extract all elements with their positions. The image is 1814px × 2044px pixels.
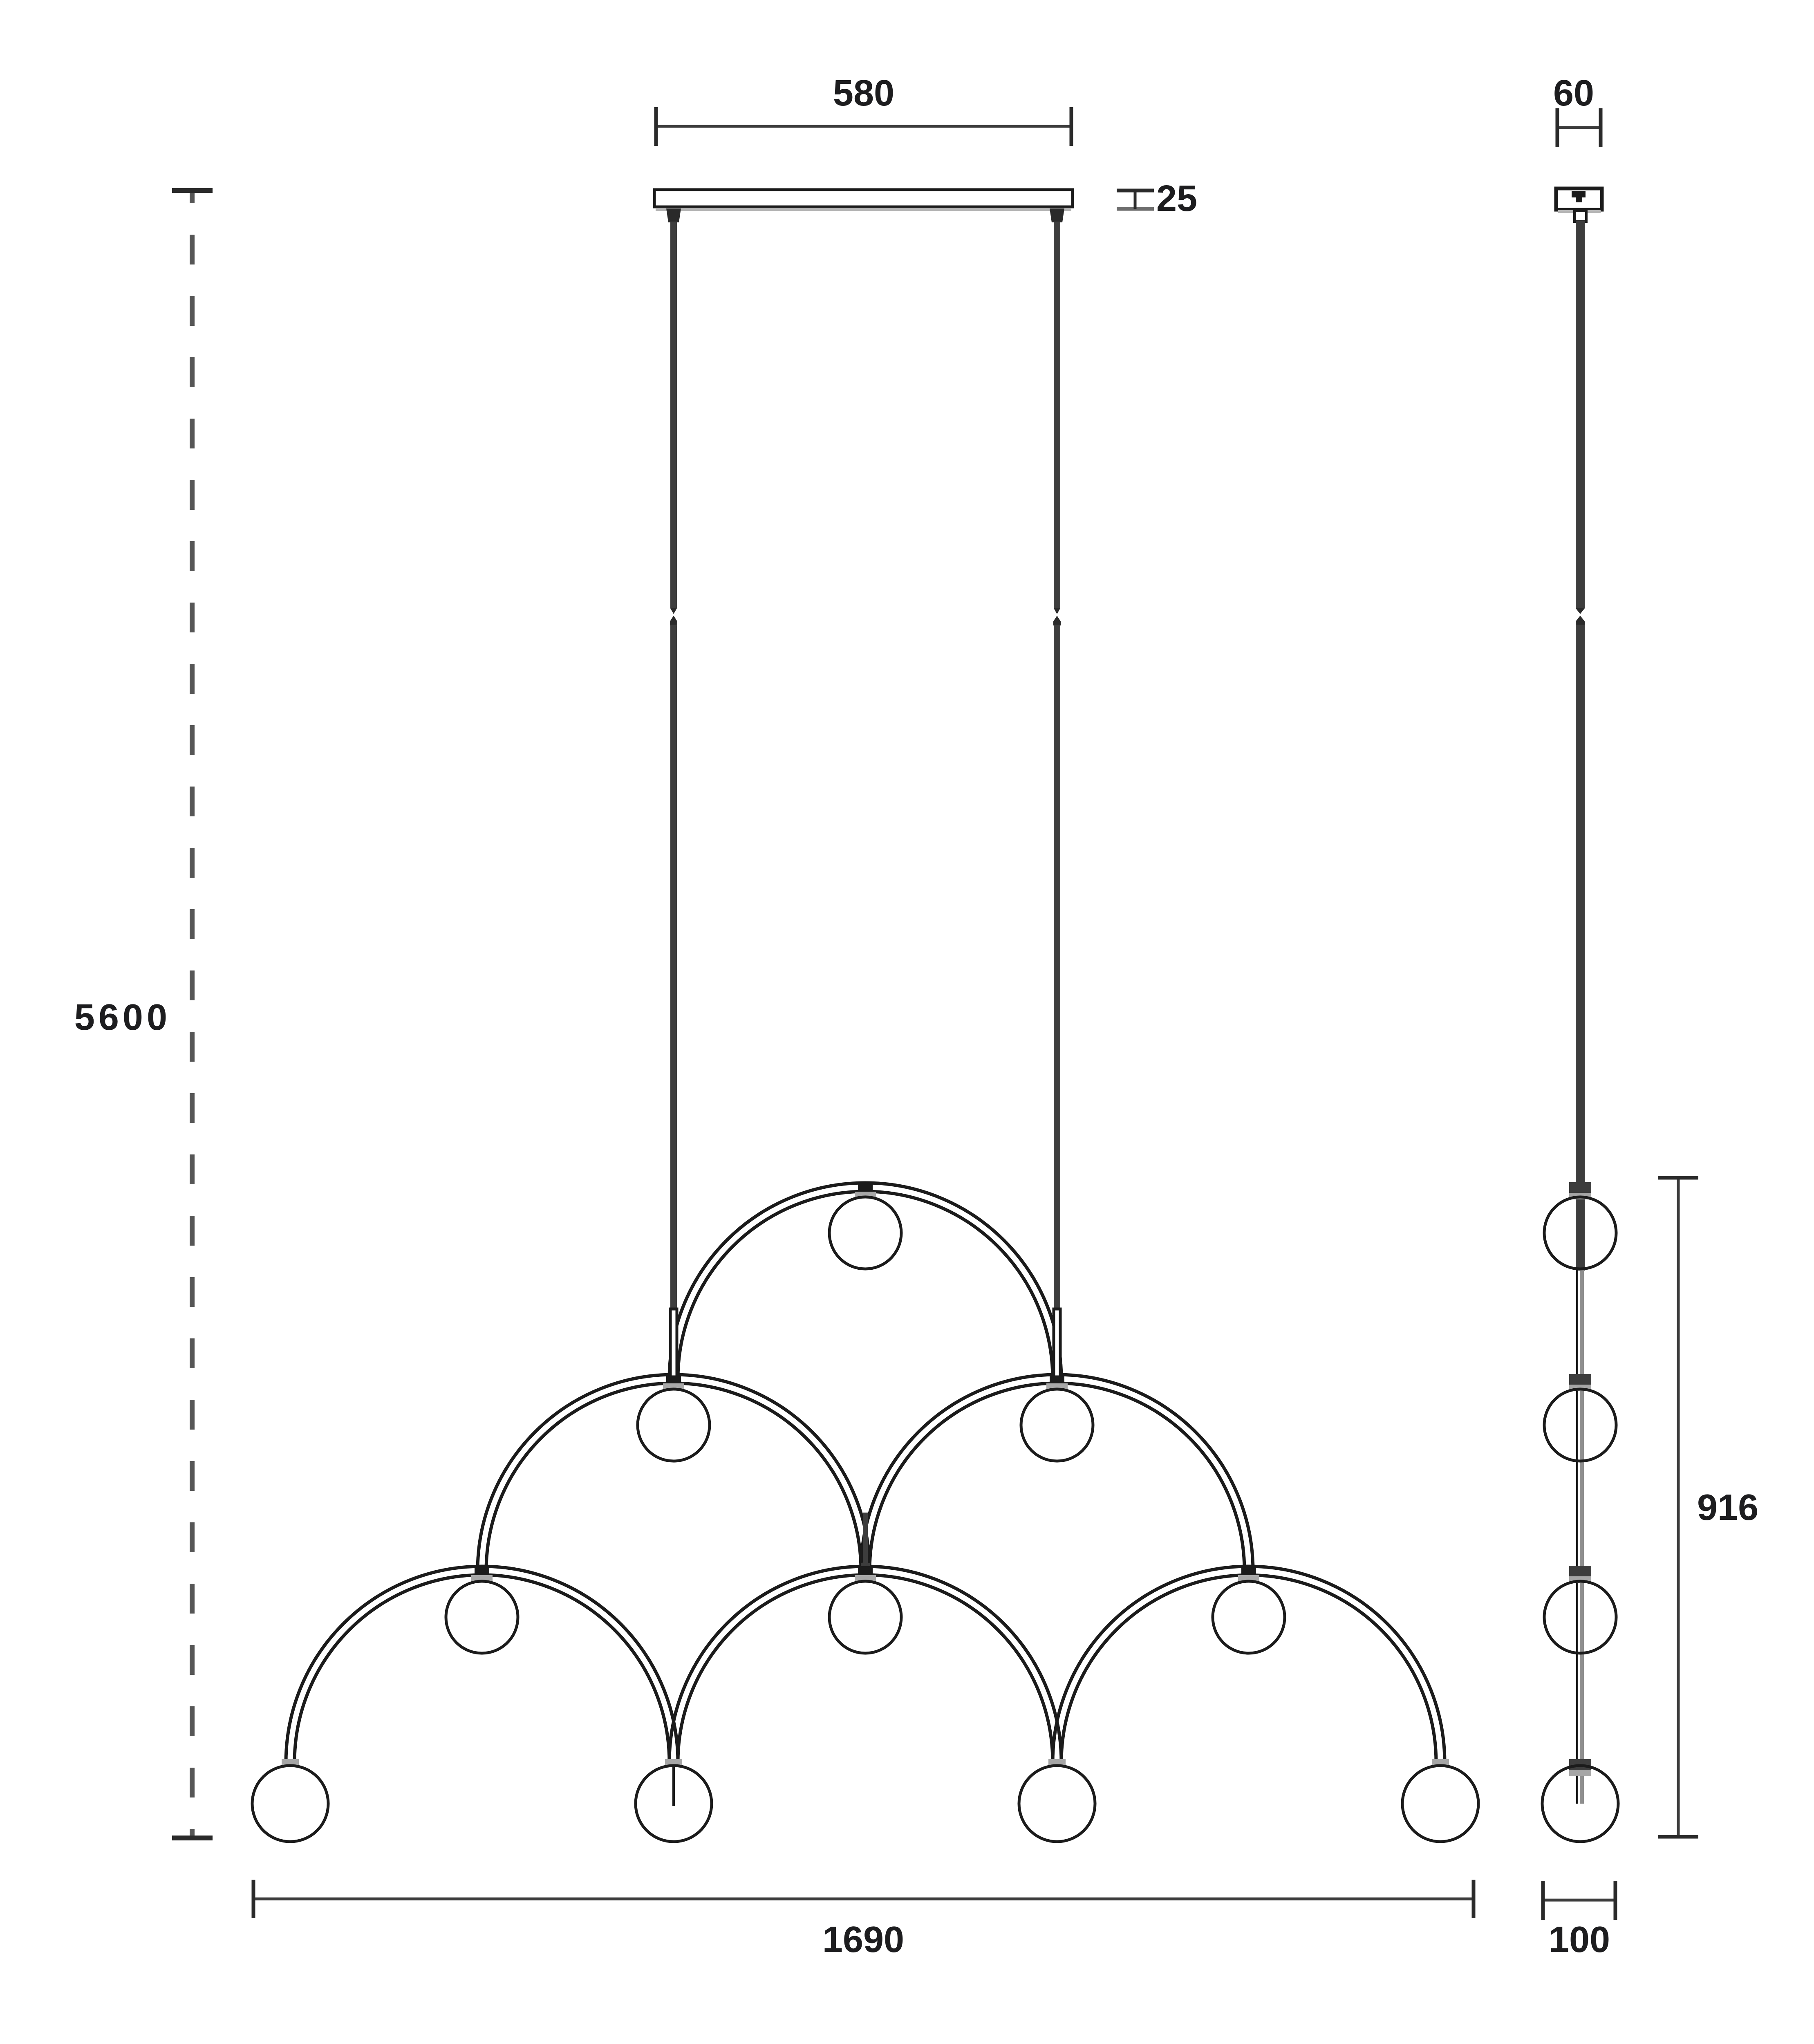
svg-text:916: 916 [1697,1487,1758,1528]
svg-text:60: 60 [1553,73,1594,114]
svg-text:580: 580 [833,73,894,114]
svg-text:100: 100 [1549,1919,1610,1960]
svg-text:5600: 5600 [74,997,171,1038]
svg-text:25: 25 [1156,178,1197,219]
svg-text:1690: 1690 [822,1919,904,1960]
